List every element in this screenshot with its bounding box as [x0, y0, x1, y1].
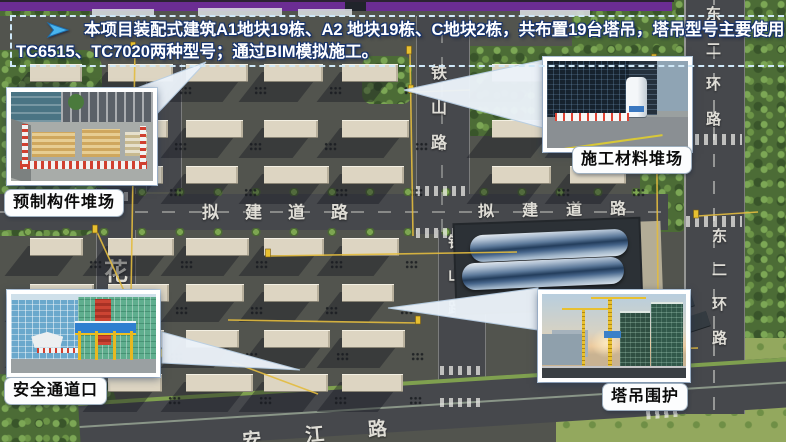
highrise-building: [547, 61, 629, 120]
tree: [68, 94, 84, 110]
building-block: [264, 284, 319, 301]
window-dots: [409, 396, 422, 405]
ground: [11, 359, 156, 373]
gate-post: [95, 331, 98, 359]
building-block: [342, 330, 405, 347]
gate-post: [130, 331, 133, 359]
silo-band: [629, 106, 645, 112]
building-block: [264, 120, 318, 137]
building-block: [342, 166, 404, 183]
label-text: 塔吊围护: [611, 388, 679, 405]
crane-sign: [604, 331, 621, 338]
label-text: 预制构件堆场: [13, 194, 115, 211]
banner-text-line2: TC6515、TC7020两种型号；通过BIM模拟施工。: [16, 41, 378, 63]
building-block: [186, 238, 249, 255]
window-dots: [405, 260, 418, 269]
accent-bar: [0, 2, 345, 11]
striped-fence: [22, 124, 28, 167]
building-block: [492, 166, 551, 183]
city-silhouette: [542, 334, 582, 364]
building-block: [186, 120, 243, 137]
label-material-yard: 施工材料堆场: [572, 146, 692, 174]
building-block: [186, 166, 238, 183]
gate-sign-band: [75, 321, 136, 335]
crane-jib: [591, 297, 646, 299]
slide-canvas: 铁山路 铁山路 拟建道路 拟建道路 东二环路 东二环路 安江路 花: [0, 0, 786, 442]
road-ground: [547, 117, 688, 148]
enclosure-wall: [542, 366, 686, 380]
striped-fence: [140, 126, 146, 165]
crane-jib: [562, 308, 611, 310]
label-text: 施工材料堆场: [581, 151, 683, 168]
window-dots: [404, 86, 417, 95]
inset-material-yard-image: [543, 57, 692, 152]
crane-mast: [582, 309, 585, 368]
building-block: [186, 330, 239, 347]
label-text: 安全通道口: [13, 382, 98, 399]
banner-text-line1: 本项目装配式建筑A1地块19栋、A2 地块19栋、C地块2栋，共布置19台塔吊，…: [84, 19, 784, 41]
green-glass-tower: [651, 302, 683, 368]
window-dots: [415, 142, 428, 151]
glass-building: [11, 92, 61, 122]
building-block: [342, 284, 394, 301]
building-block: [264, 238, 324, 255]
window-dots: [411, 352, 424, 361]
building-block: [264, 330, 330, 347]
inset-crane-enclosure-image: [538, 290, 690, 382]
window-dots: [410, 188, 423, 197]
building-block: [264, 166, 329, 183]
striped-fence: [20, 161, 148, 168]
pointer-arrow-icon: [46, 20, 70, 40]
inset-safety-gate-image: [7, 290, 160, 377]
building-block: [342, 120, 409, 137]
green-glass-tower: [620, 311, 650, 368]
label-precast-yard: 预制构件堆场: [4, 189, 124, 217]
striped-fence: [37, 348, 78, 354]
light-building: [657, 61, 688, 111]
window-dots: [400, 306, 413, 315]
inset-precast-yard-image: [7, 88, 157, 185]
gate-post: [78, 331, 81, 359]
title-banner: 本项目装配式建筑A1地块19栋、A2 地块19栋、C地块2栋，共布置19台塔吊，…: [10, 15, 786, 67]
barrier-fence: [555, 113, 628, 121]
building-block: [108, 238, 174, 255]
building-block: [264, 374, 328, 391]
precast-stack: [82, 129, 120, 157]
window-dots: [632, 188, 645, 197]
label-crane-enclosure: 塔吊围护: [602, 383, 688, 411]
building-block: [342, 238, 399, 255]
accent-bar: [366, 2, 672, 11]
gate-post: [113, 331, 116, 359]
building-block: [342, 374, 403, 391]
building-block: [186, 284, 244, 301]
building-block: [186, 374, 253, 391]
precast-stack: [32, 132, 75, 157]
building-block: [30, 238, 83, 255]
label-safety-gate: 安全通道口: [4, 377, 107, 405]
